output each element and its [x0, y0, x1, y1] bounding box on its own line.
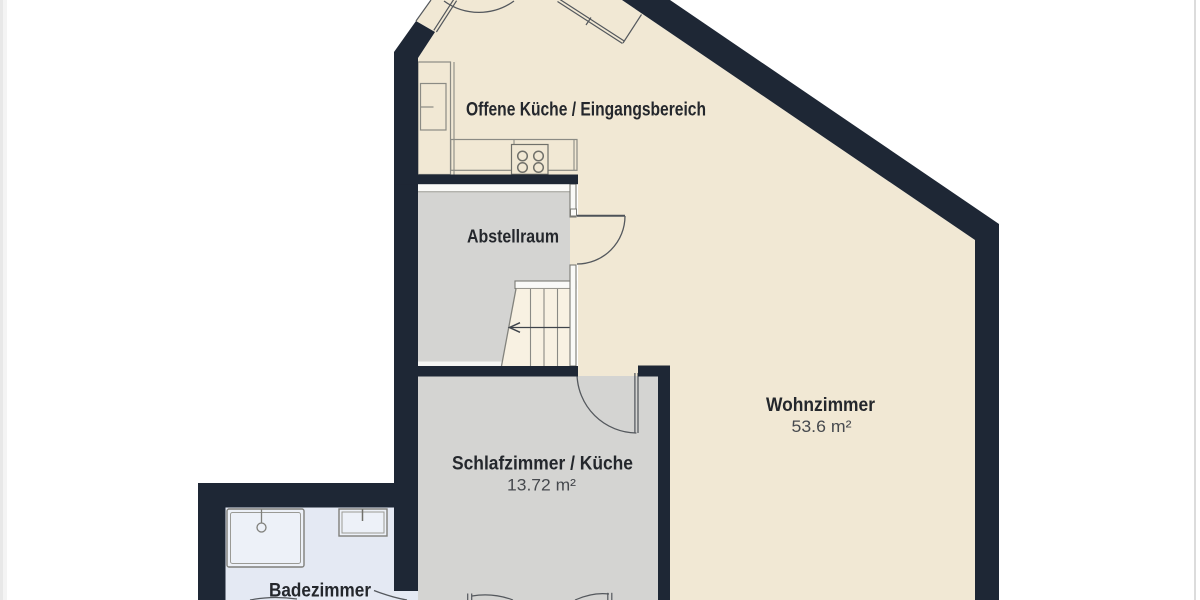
svg-text:Schlafzimmer / Küche: Schlafzimmer / Küche [452, 453, 633, 475]
svg-text:Offene Küche / Eingangsbereich: Offene Küche / Eingangsbereich [466, 100, 706, 121]
svg-text:Badezimmer: Badezimmer [269, 580, 371, 600]
svg-text:Wohnzimmer: Wohnzimmer [766, 394, 875, 416]
svg-text:53.6 m²: 53.6 m² [792, 417, 852, 436]
svg-text:13.72 m²: 13.72 m² [507, 476, 576, 495]
svg-text:Abstellraum: Abstellraum [467, 226, 559, 247]
